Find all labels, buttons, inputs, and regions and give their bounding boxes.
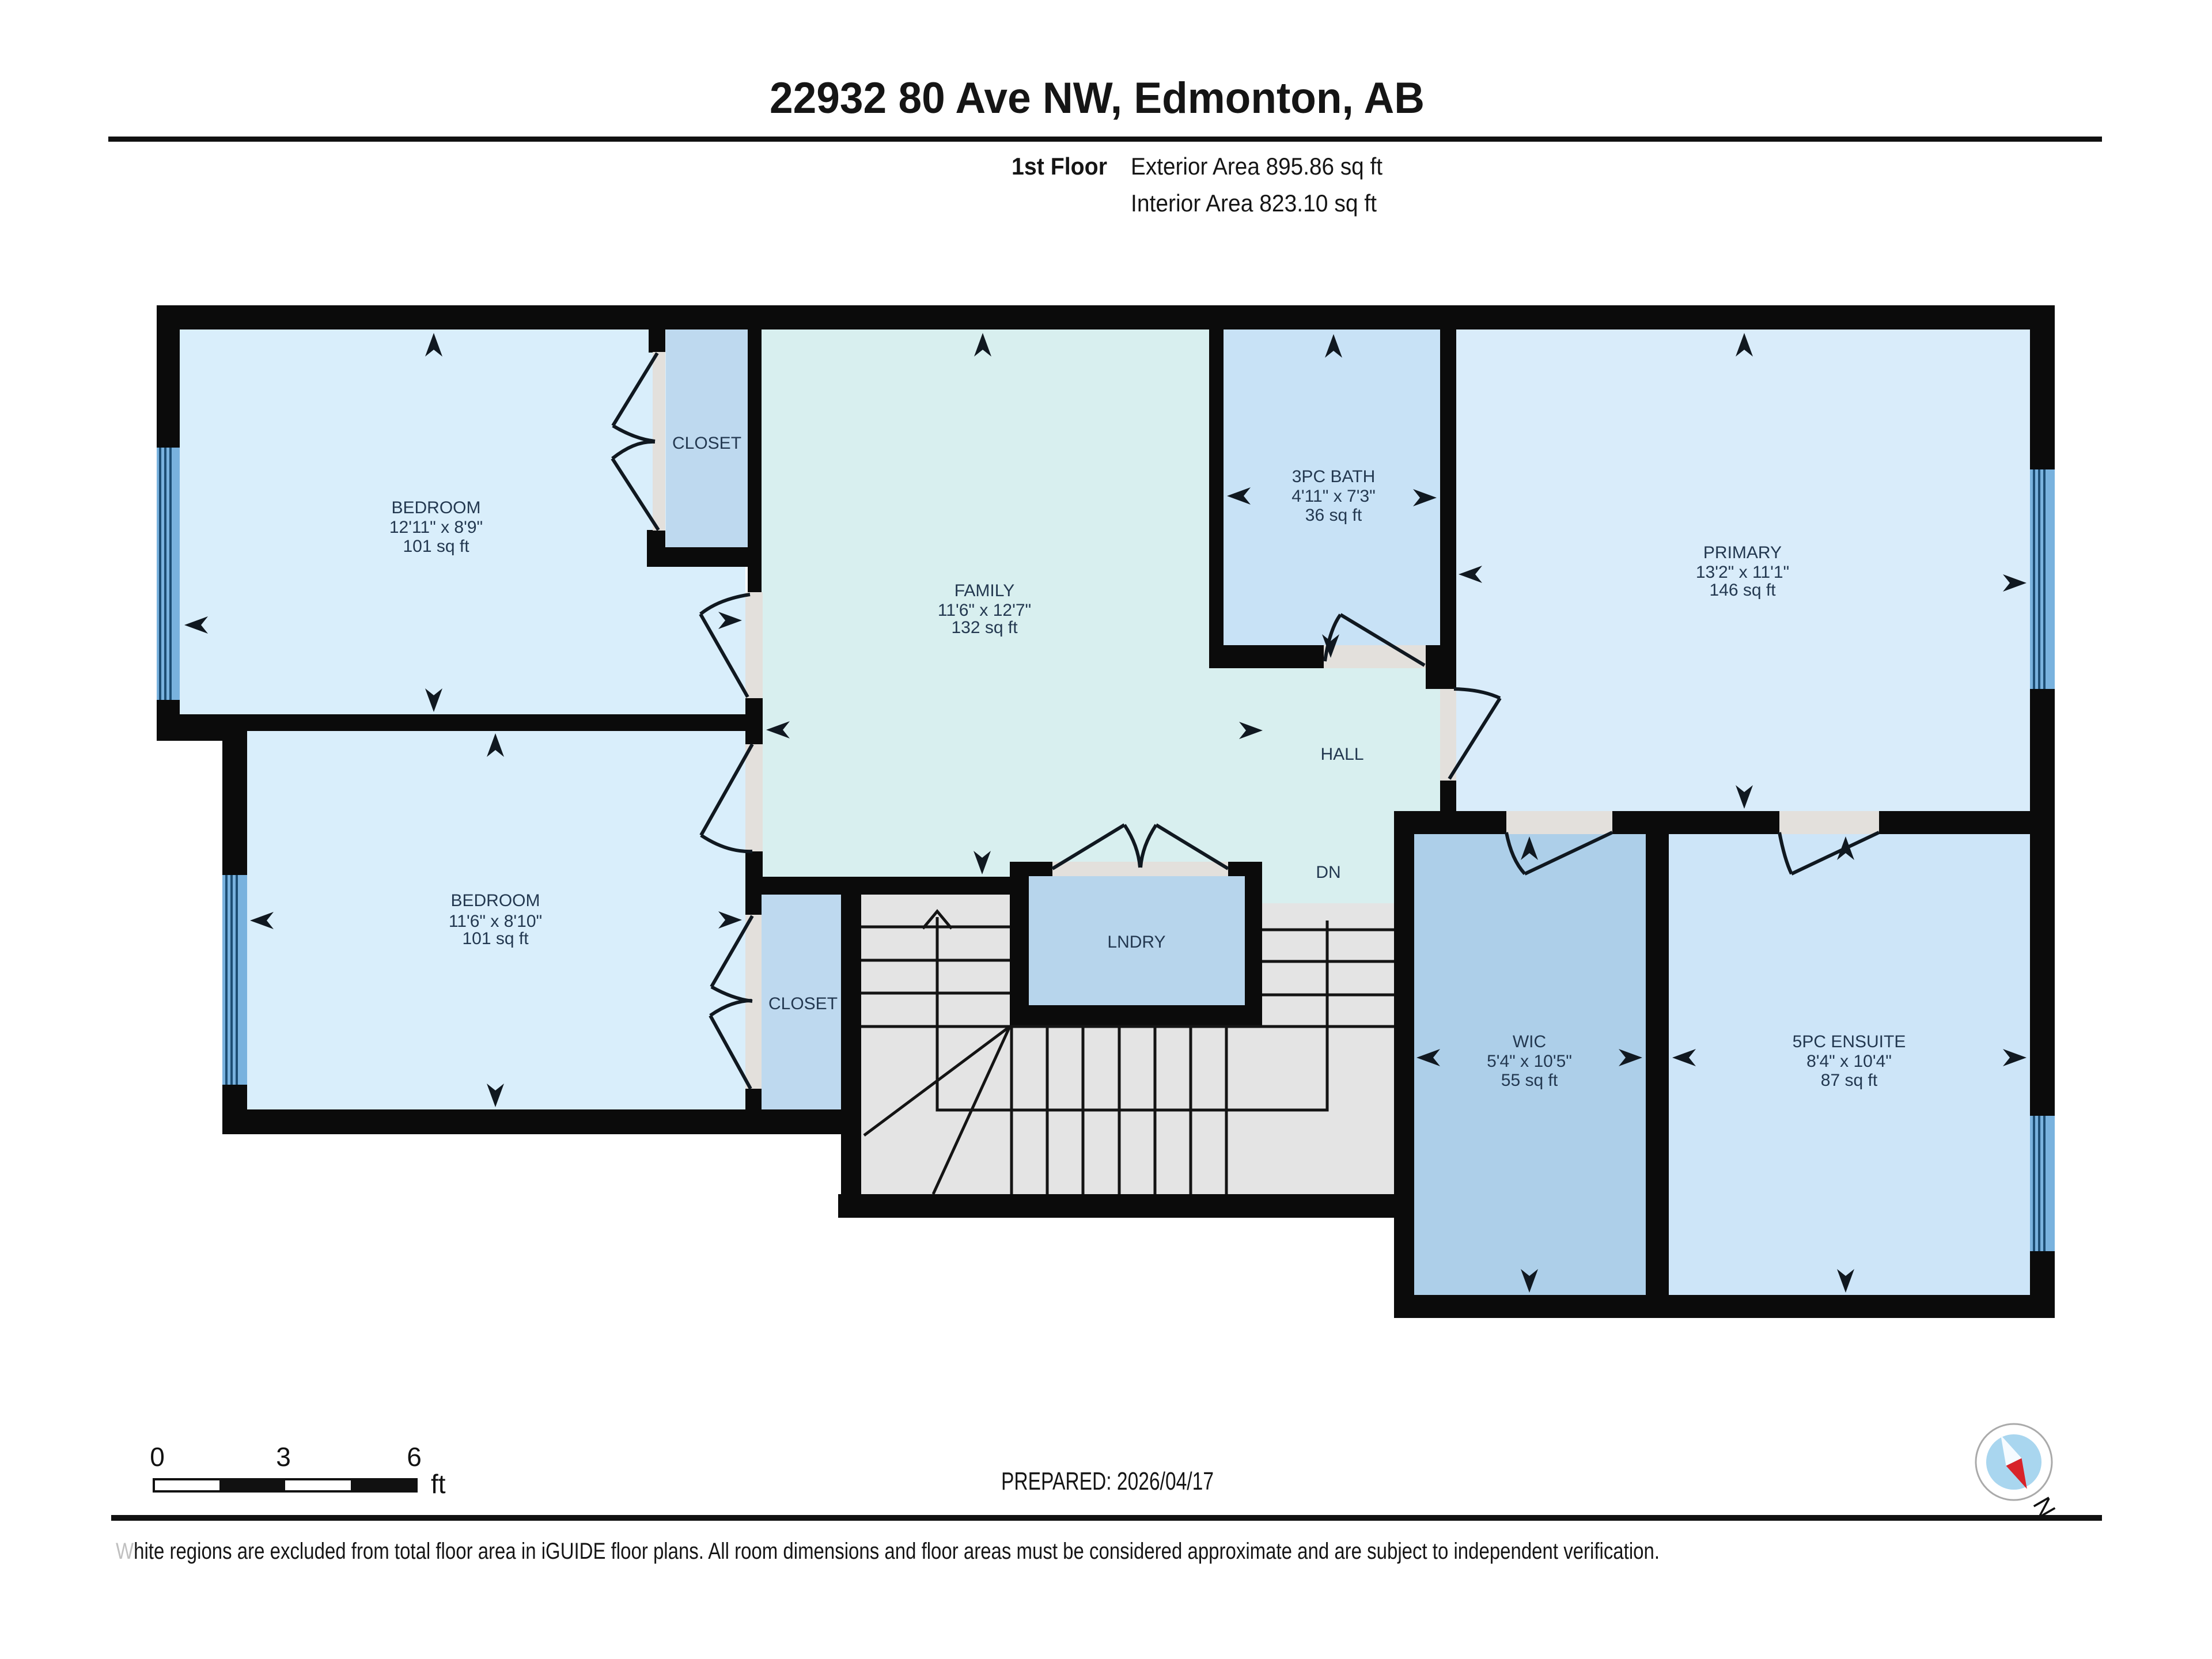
- svg-text:146 sq ft: 146 sq ft: [1709, 581, 1776, 600]
- svg-text:5PC ENSUITE: 5PC ENSUITE: [1793, 1032, 1906, 1051]
- svg-text:Exterior Area 895.86 sq ft: Exterior Area 895.86 sq ft: [1131, 153, 1382, 180]
- svg-text:5'4" x 10'5": 5'4" x 10'5": [1487, 1052, 1572, 1071]
- svg-text:WIC: WIC: [1513, 1032, 1546, 1051]
- svg-text:Interior Area 823.10 sq ft: Interior Area 823.10 sq ft: [1131, 190, 1377, 217]
- svg-text:3PC BATH: 3PC BATH: [1292, 467, 1375, 486]
- svg-text:HALL: HALL: [1320, 745, 1363, 764]
- svg-text:ft: ft: [431, 1469, 446, 1499]
- svg-text:FAMILY: FAMILY: [955, 581, 1014, 600]
- svg-text:13'2" x 11'1": 13'2" x 11'1": [1696, 563, 1789, 582]
- svg-text:132 sq ft: 132 sq ft: [951, 618, 1018, 637]
- svg-text:8'4" x 10'4": 8'4" x 10'4": [1806, 1052, 1892, 1071]
- svg-text:36 sq ft: 36 sq ft: [1305, 506, 1362, 525]
- svg-text:BEDROOM: BEDROOM: [450, 891, 540, 910]
- svg-text:0: 0: [150, 1442, 165, 1472]
- svg-text:White regions are excluded fro: White regions are excluded from total fl…: [116, 1539, 1660, 1564]
- svg-text:CLOSET: CLOSET: [672, 434, 741, 453]
- svg-text:PRIMARY: PRIMARY: [1703, 543, 1782, 562]
- svg-text:55 sq ft: 55 sq ft: [1501, 1071, 1558, 1090]
- svg-text:PREPARED: 2026/04/17: PREPARED: 2026/04/17: [1001, 1467, 1214, 1495]
- svg-text:87 sq ft: 87 sq ft: [1821, 1071, 1878, 1090]
- svg-text:6: 6: [407, 1442, 422, 1472]
- svg-text:11'6" x 8'10": 11'6" x 8'10": [449, 912, 542, 931]
- svg-text:11'6" x 12'7": 11'6" x 12'7": [938, 601, 1031, 620]
- svg-text:LNDRY: LNDRY: [1107, 933, 1165, 952]
- svg-text:3: 3: [276, 1442, 291, 1472]
- svg-text:101 sq ft: 101 sq ft: [403, 537, 469, 556]
- svg-text:CLOSET: CLOSET: [768, 994, 838, 1013]
- svg-text:22932 80 Ave NW, Edmonton, AB: 22932 80 Ave NW, Edmonton, AB: [770, 74, 1425, 123]
- svg-text:101 sq ft: 101 sq ft: [462, 929, 529, 948]
- svg-text:DN: DN: [1316, 863, 1340, 882]
- svg-text:1st Floor: 1st Floor: [1012, 153, 1107, 180]
- svg-text:BEDROOM: BEDROOM: [391, 498, 480, 517]
- svg-text:4'11" x 7'3": 4'11" x 7'3": [1291, 487, 1376, 506]
- svg-text:12'11" x 8'9": 12'11" x 8'9": [389, 518, 483, 537]
